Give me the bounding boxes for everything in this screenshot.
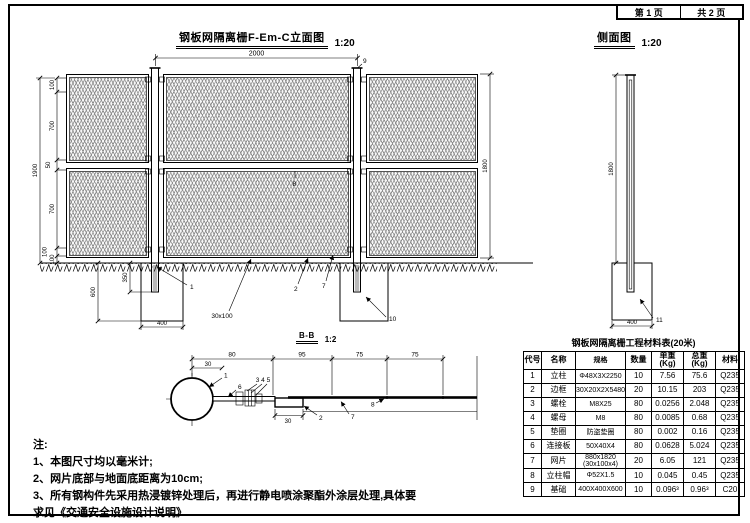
table-cell: 0.0085 [652, 411, 684, 425]
table-cell: 1 [524, 369, 542, 383]
table-cell: Q235 [716, 453, 745, 469]
table-row: 4螺母M8800.00850.68Q235 [524, 411, 745, 425]
table-cell: 网片 [542, 453, 576, 469]
table-cell: 50X40X4 [576, 439, 626, 453]
table-row: 1立柱Φ48X3X2250107.5675.6Q235 [524, 369, 745, 383]
table-cell: 20 [626, 383, 652, 397]
front-view-title: 钢板网隔离栅F-Em-C立面图 1:20 [176, 29, 355, 49]
mesh-texture [69, 171, 147, 256]
mesh-panel-right-lower [366, 168, 478, 258]
notes-block: 注: 1、本图尺寸均以毫米计; 2、网片底部与地面底距离为10cm; 3、所有钢… [33, 437, 416, 522]
table-header-cell: 规格 [576, 352, 626, 370]
table-cell: 0.002 [652, 425, 684, 439]
note-1: 1、本图尺寸均以毫米计; [33, 454, 416, 471]
table-cell: Φ48X3X2250 [576, 369, 626, 383]
table-header-cell: 单重(Kg) [652, 352, 684, 370]
table-row: 7网片880x1820 (30x100x4)206.05121Q235 [524, 453, 745, 469]
mesh-texture [69, 77, 147, 161]
mesh-panel-left-lower [66, 168, 149, 258]
front-view-title-text: 钢板网隔离栅F-Em-C立面图 [176, 29, 328, 49]
table-cell: 7.56 [652, 369, 684, 383]
table-header-cell: 名称 [542, 352, 576, 370]
table-row: 8立柱帽Φ52X1.5100.0450.45Q235 [524, 469, 745, 483]
table-cell: 9 [524, 483, 542, 497]
table-cell: 10 [626, 469, 652, 483]
table-cell: 400X400X600 [576, 483, 626, 497]
sheet-total: 共 2 页 [681, 6, 743, 18]
table-row: 5垫圈防盗垫圈800.0020.16Q235 [524, 425, 745, 439]
table-cell: Q235 [716, 469, 745, 483]
section-scale: 1:2 [325, 335, 337, 344]
table-row: 3螺栓M8X25800.02562.048Q235 [524, 397, 745, 411]
table-cell: Φ52X1.5 [576, 469, 626, 483]
table-cell: 0.16 [684, 425, 716, 439]
table-cell: 80 [626, 425, 652, 439]
table-row: 2边框30X20X2X54802010.15203Q235 [524, 383, 745, 397]
table-cell: M8 [576, 411, 626, 425]
note-3-cont: 求见《交通安全设施设计说明》. [33, 505, 416, 522]
material-table-title: 钢板网隔离栅工程材料表(20米) [523, 336, 744, 349]
note-2: 2、网片底部与地面底距离为10cm; [33, 471, 416, 488]
table-cell: Q235 [716, 383, 745, 397]
table-cell: 0.0256 [652, 397, 684, 411]
table-cell: 垫圈 [542, 425, 576, 439]
table-cell: 5 [524, 425, 542, 439]
sheet-number: 第 1 页 [618, 6, 681, 18]
table-cell: 80 [626, 397, 652, 411]
drawing-sheet: 第 1 页 共 2 页 钢板网隔离栅F-Em-C立面图 1:20 侧面图 1:2… [0, 0, 750, 523]
table-cell: 基础 [542, 483, 576, 497]
mesh-texture [369, 77, 476, 161]
mesh-panel-right-upper [366, 74, 478, 163]
table-cell: 880x1820 (30x100x4) [576, 453, 626, 469]
table-header-cell: 总重(Kg) [684, 352, 716, 370]
table-cell: 80 [626, 439, 652, 453]
table-header-cell: 数量 [626, 352, 652, 370]
notes-title: 注: [33, 437, 416, 454]
table-cell: 立柱 [542, 369, 576, 383]
table-cell: 75.6 [684, 369, 716, 383]
note-3: 3、所有钢构件先采用热浸镀锌处理后，再进行静电喷涂聚酯外涂层处理,具体要 [33, 488, 416, 505]
material-table-block: 钢板网隔离栅工程材料表(20米) 代号 名称 规格 数量 单重(Kg) 总重(K… [523, 336, 744, 497]
table-header-cell: 材料 [716, 352, 745, 370]
table-cell: 6.05 [652, 453, 684, 469]
front-view-scale: 1:20 [335, 38, 355, 49]
table-cell: 连接板 [542, 439, 576, 453]
table-cell: 10 [626, 483, 652, 497]
table-cell: 80 [626, 411, 652, 425]
table-cell: 2.048 [684, 397, 716, 411]
table-cell: 5.024 [684, 439, 716, 453]
table-cell: Q235 [716, 425, 745, 439]
side-view-title: 侧面图 1:20 [594, 29, 662, 49]
table-cell: C20 [716, 483, 745, 497]
table-row: 6连接板50X40X4800.06285.024Q235 [524, 439, 745, 453]
table-cell: Q235 [716, 369, 745, 383]
table-cell: 4 [524, 411, 542, 425]
table-cell: 8 [524, 469, 542, 483]
side-view-title-text: 侧面图 [594, 29, 635, 49]
table-cell: 3 [524, 397, 542, 411]
table-header-row: 代号 名称 规格 数量 单重(Kg) 总重(Kg) 材料 [524, 352, 745, 370]
table-cell: 立柱帽 [542, 469, 576, 483]
table-cell: M8X25 [576, 397, 626, 411]
table-cell: 20 [626, 453, 652, 469]
mesh-texture [166, 171, 349, 256]
table-cell: 7 [524, 453, 542, 469]
table-cell: 30X20X2X5480 [576, 383, 626, 397]
table-cell: 0.96³ [684, 483, 716, 497]
mesh-panel-mid-lower [163, 168, 351, 258]
table-cell: 0.45 [684, 469, 716, 483]
mesh-texture [369, 171, 476, 256]
table-cell: 10 [626, 369, 652, 383]
table-cell: 203 [684, 383, 716, 397]
table-cell: 0.045 [652, 469, 684, 483]
table-cell: Q235 [716, 439, 745, 453]
table-cell: 0.096³ [652, 483, 684, 497]
table-row: 9基础400X400X600100.096³0.96³C20 [524, 483, 745, 497]
mesh-panel-left-upper [66, 74, 149, 163]
table-cell: Q235 [716, 397, 745, 411]
section-title-text: B-B [296, 331, 318, 344]
table-cell: 0.68 [684, 411, 716, 425]
material-table: 代号 名称 规格 数量 单重(Kg) 总重(Kg) 材料 1立柱Φ48X3X22… [523, 351, 745, 497]
section-title: B-B 1:2 [296, 331, 336, 344]
table-cell: 10.15 [652, 383, 684, 397]
table-cell: Q235 [716, 411, 745, 425]
table-header-cell: 代号 [524, 352, 542, 370]
table-cell: 2 [524, 383, 542, 397]
mesh-texture [166, 77, 349, 161]
table-cell: 6 [524, 439, 542, 453]
table-cell: 螺栓 [542, 397, 576, 411]
table-cell: 0.0628 [652, 439, 684, 453]
table-cell: 边框 [542, 383, 576, 397]
page-number-box: 第 1 页 共 2 页 [616, 4, 744, 20]
side-view-scale: 1:20 [642, 38, 662, 49]
table-cell: 防盗垫圈 [576, 425, 626, 439]
table-cell: 螺母 [542, 411, 576, 425]
table-cell: 121 [684, 453, 716, 469]
mesh-panel-mid-upper [163, 74, 351, 163]
